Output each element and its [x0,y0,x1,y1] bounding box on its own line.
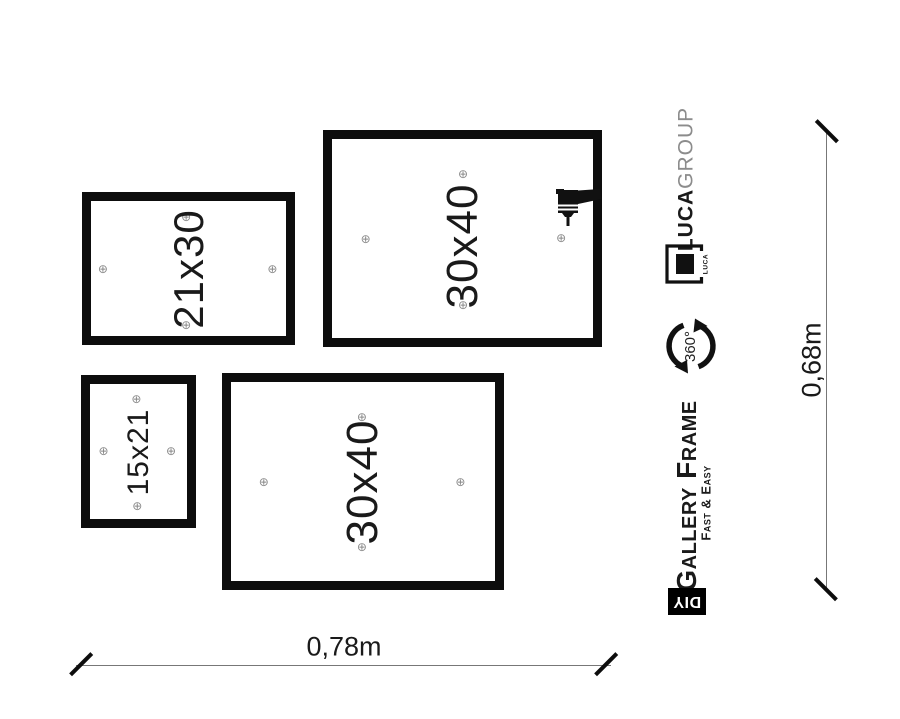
drill-point-icon: ⊕ [98,445,108,457]
brand-lucagroup-text: LUCAGROUP [676,107,697,251]
frame-size-label: 30x40 [441,183,485,308]
drill-point-icon: ⊕ [556,232,566,244]
drill-point-icon: ⊕ [132,500,142,512]
drill-icon [556,189,602,227]
dimension-tick [594,652,618,676]
drill-point-icon: ⊕ [259,476,269,488]
frame-size-label: 21x30 [168,209,210,328]
frame-30x40-top: ⊕ ⊕ ⊕ ⊕ 30x40 [323,130,602,347]
drill-point-icon: ⊕ [458,168,468,180]
drill-point-icon: ⊕ [267,263,277,275]
frame-size-label: 30x40 [341,419,385,544]
diy-badge-label: DIY [673,594,701,610]
frame-size-label: 15x21 [124,408,154,495]
width-dimension-label: 0,78m [306,632,381,663]
drill-point-icon: ⊕ [98,263,108,275]
dimension-tick [815,119,839,143]
brand-name-light: GROUP [675,107,698,189]
gallery-frame-layout-diagram: ⊕ ⊕ ⊕ ⊕ 21x30 ⊕ ⊕ ⊕ ⊕ 30x40 ⊕ ⊕ ⊕ ⊕ 15x2… [0,0,900,719]
height-dimension-label: 0,68m [799,322,826,397]
dimension-tick [69,652,93,676]
brand-name-bold: LUCA [675,189,698,251]
diy-badge: DIY [668,588,706,615]
drill-point-icon: ⊕ [455,476,465,488]
frame-15x21: ⊕ ⊕ ⊕ ⊕ 15x21 [81,375,196,528]
product-title: Gallery Frame [673,400,701,591]
product-subtitle: Fast & Easy [700,465,713,540]
drill-point-icon: ⊕ [361,233,371,245]
luca-logo-icon: LUCA [665,243,709,285]
drill-point-icon: ⊕ [166,445,176,457]
rotation-360-icon: 360° [662,317,720,375]
luca-logo-label: LUCA [703,254,709,274]
drill-point-icon: ⊕ [131,393,141,405]
frame-21x30: ⊕ ⊕ ⊕ ⊕ 21x30 [82,192,295,345]
frame-30x40-bottom: ⊕ ⊕ ⊕ ⊕ 30x40 [222,373,504,590]
rotation-degree-label: 360° [682,331,699,362]
width-dimension-line [76,665,611,666]
